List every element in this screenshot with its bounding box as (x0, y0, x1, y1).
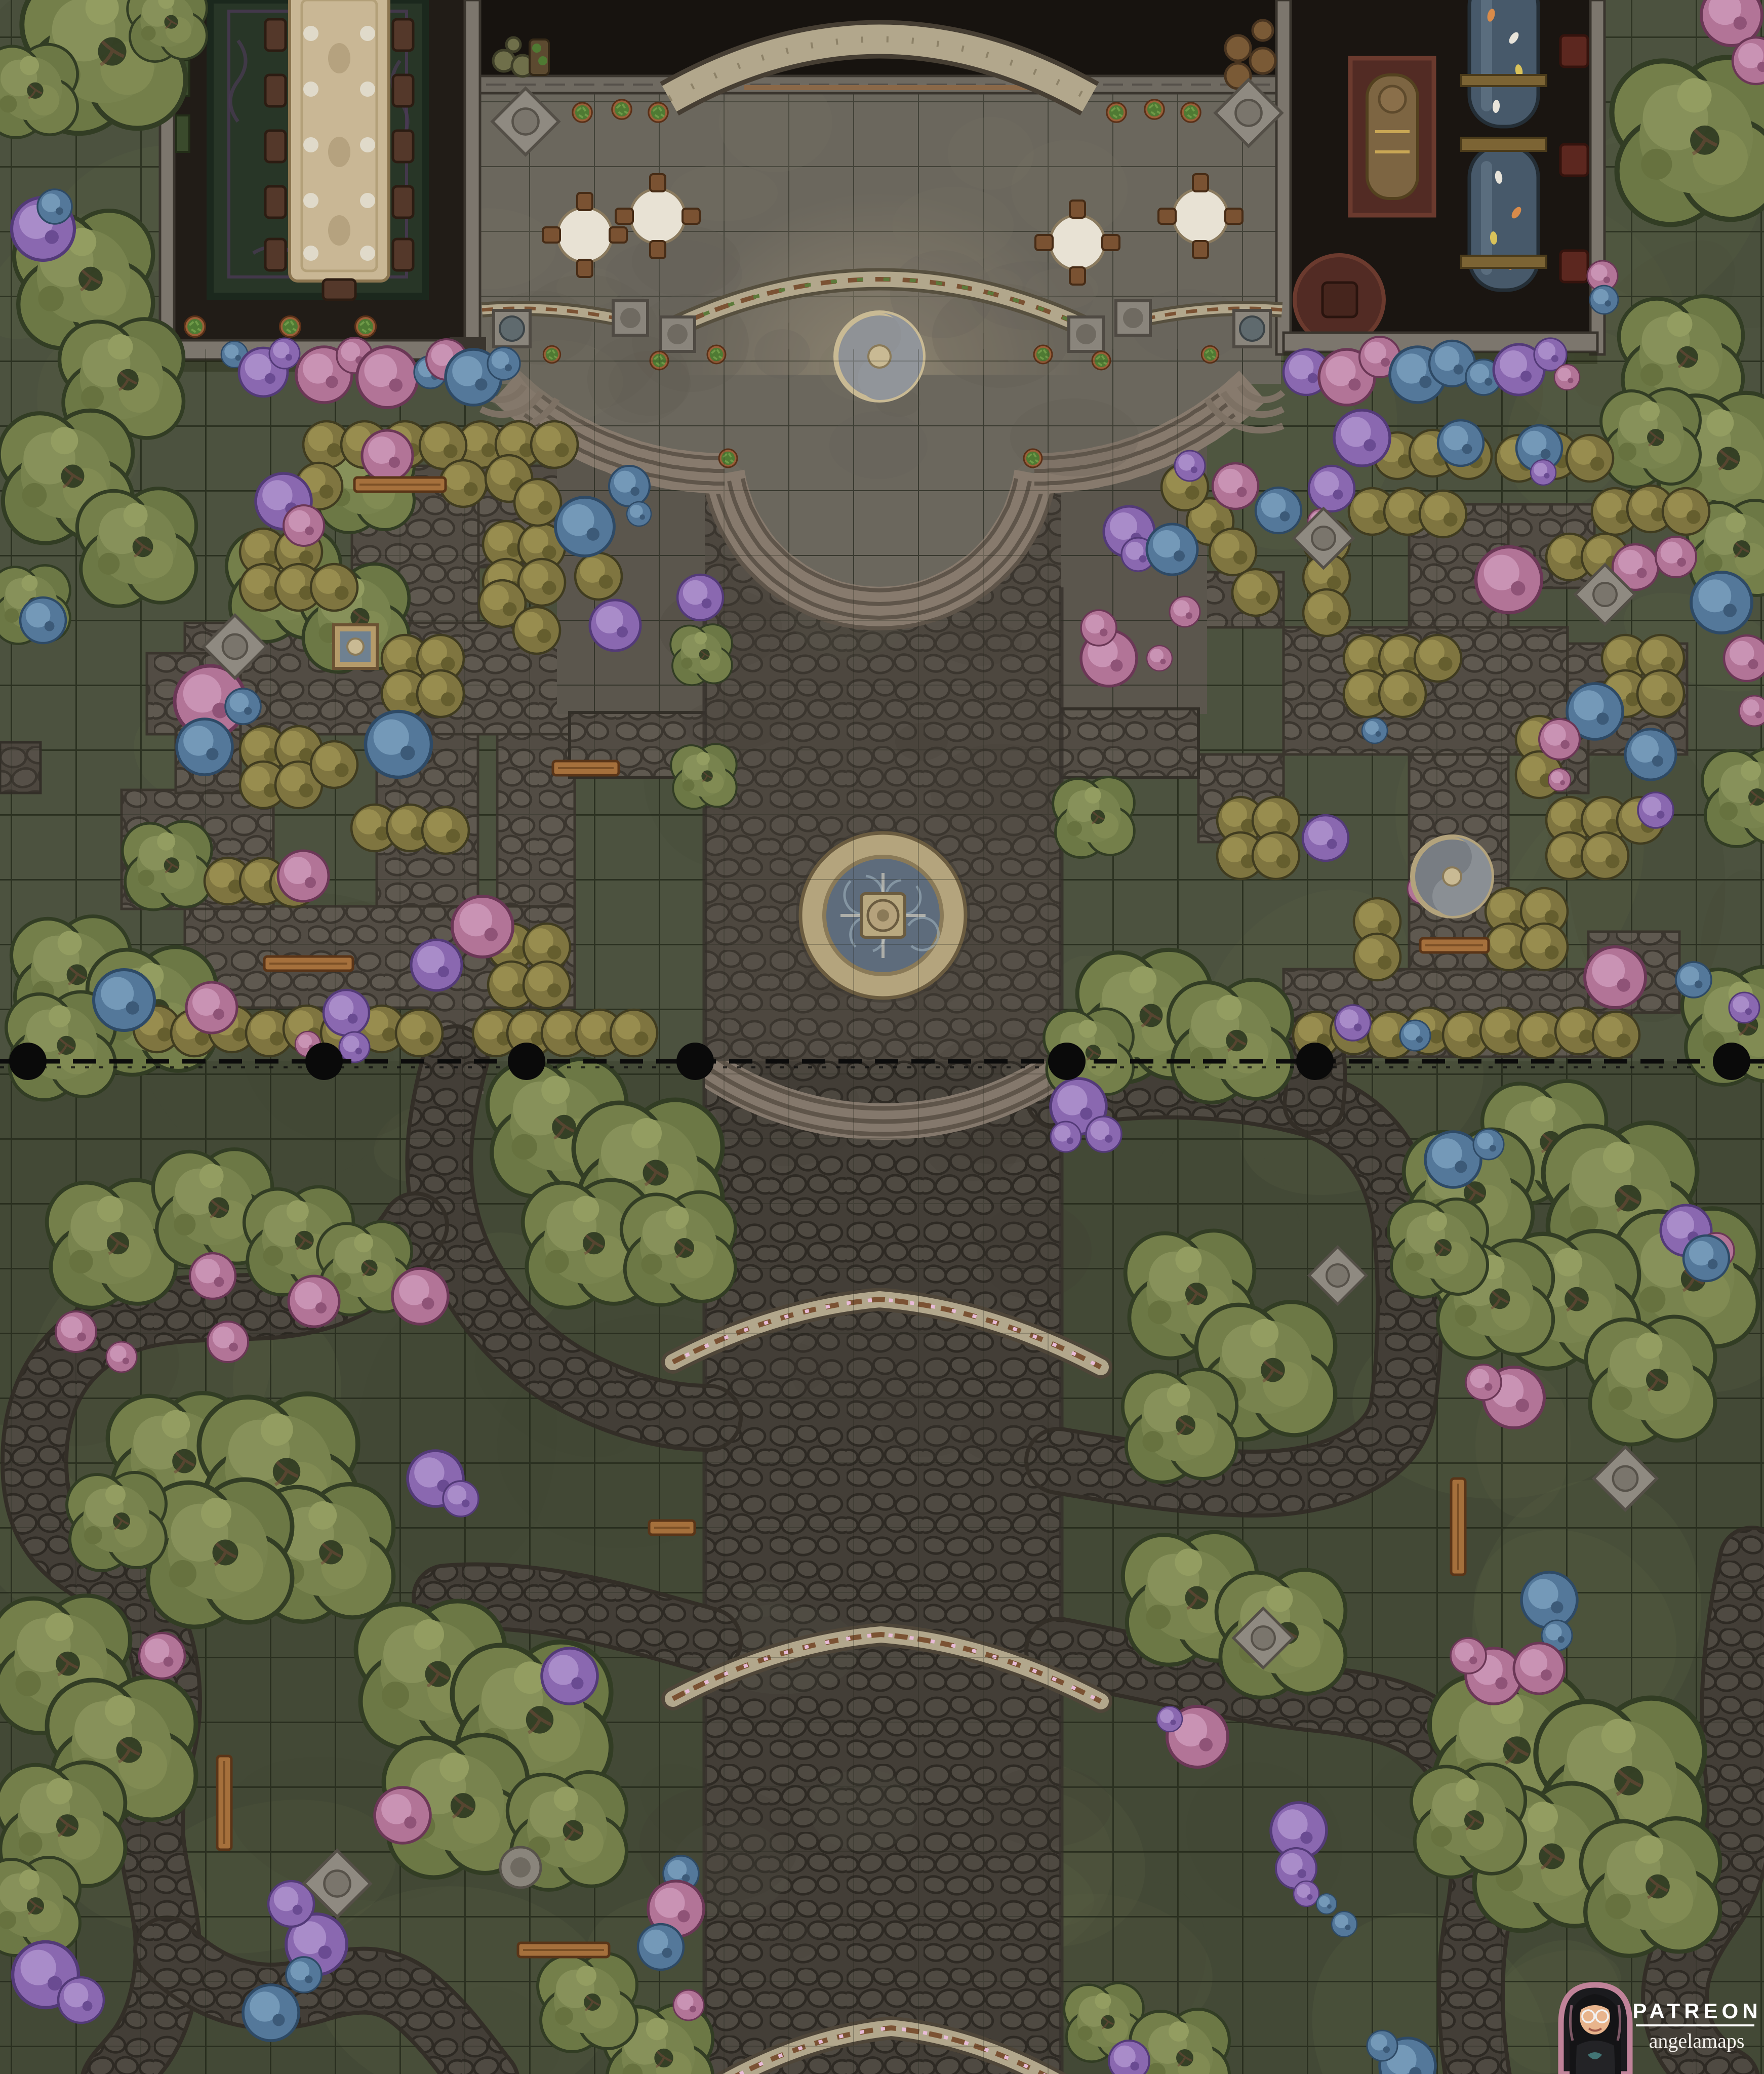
svg-text:PATREON: PATREON (1632, 1999, 1761, 2023)
svg-text:angelamaps: angelamaps (1649, 2029, 1745, 2052)
